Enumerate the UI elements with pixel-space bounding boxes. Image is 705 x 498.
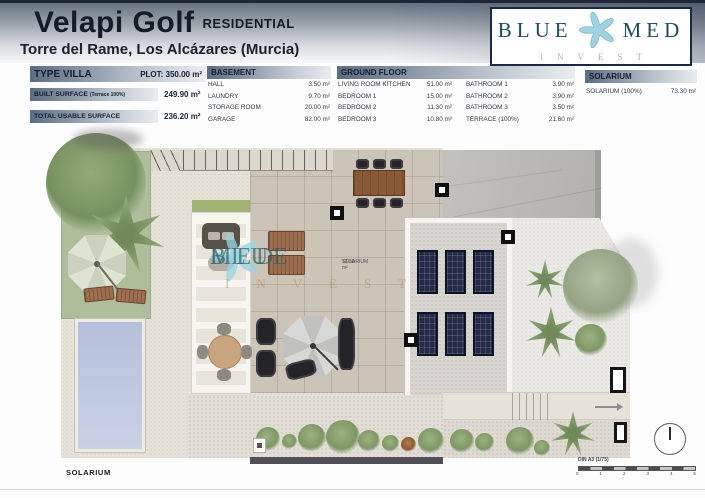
bush-icon	[282, 434, 297, 449]
roof-seam	[444, 170, 563, 188]
bush-icon	[475, 433, 494, 452]
bush-icon	[326, 420, 360, 454]
chair	[217, 323, 231, 335]
usable-surface-label: TOTAL USABLE SURFACE	[34, 113, 120, 120]
roof-seam	[454, 188, 601, 218]
dining-chair	[356, 198, 369, 208]
built-surface-label: BUILT SURFACE	[34, 91, 88, 98]
bush-icon	[418, 428, 444, 454]
table-row: BATHROOM 13.90 m²	[465, 79, 575, 91]
watermark-med: MED	[210, 245, 278, 269]
wall-opening	[610, 367, 626, 393]
dining-chair	[373, 198, 386, 208]
ground-floor-header: GROUND FLOOR	[337, 66, 575, 79]
table-row: STORAGE ROOM20.00 m²	[207, 102, 331, 114]
sun-lounger-icon	[115, 288, 146, 305]
development-name: Velapi Golf	[34, 6, 195, 39]
exit-arrow-head	[617, 403, 623, 411]
table-row: HALL3.50 m²	[207, 79, 331, 91]
dining-chair	[390, 198, 403, 208]
basement-header: BASEMENT	[207, 66, 331, 79]
scale-label: DIN A3 (1/75)	[578, 457, 609, 463]
armchair	[256, 318, 276, 345]
plan-sheet: Velapi GolfRESIDENTIAL Torre del Rame, L…	[0, 0, 705, 498]
stairs-landing	[150, 150, 180, 171]
tree-shadow	[73, 129, 143, 149]
solar-panel-icon	[473, 312, 494, 356]
bush-icon	[382, 435, 399, 452]
ground-floor-col1: LIVING ROOM KITCHEN51.00 m² BEDROOM 115.…	[337, 79, 453, 125]
bush-icon	[506, 427, 534, 455]
watermark-invest: INVEST	[225, 276, 465, 292]
solar-panel-icon	[445, 312, 466, 356]
page-edge	[0, 489, 705, 490]
table-row: SOLARIUM (100%)73.30 m²	[585, 86, 697, 98]
round-table	[208, 335, 242, 369]
dining-chair	[356, 159, 369, 169]
dining-chair	[373, 159, 386, 169]
exit-arrow-icon	[595, 406, 619, 408]
room-area: 73.30 m²	[342, 259, 355, 271]
solarium-table: SOLARIUM SOLARIUM (100%)73.30 m²	[585, 70, 697, 98]
pillar	[330, 206, 344, 220]
logo-invest: INVEST	[526, 52, 656, 62]
dining-chair	[390, 159, 403, 169]
table-row: LAUNDRY9.70 m²	[207, 91, 331, 103]
usable-surface-value: 236.20 m²	[164, 112, 200, 121]
scale-ticks: 0 1 2 3 4 5	[576, 471, 696, 476]
bush-icon	[450, 429, 474, 453]
roof	[443, 150, 601, 221]
residential-tag: RESIDENTIAL	[203, 16, 295, 31]
bush-icon	[401, 437, 416, 452]
built-surface-bar: BUILT SURFACE (Terrace 100%)	[30, 88, 158, 101]
wall-opening	[614, 422, 627, 443]
chair	[217, 369, 231, 381]
logo-word-med: MED	[623, 20, 685, 41]
pool	[75, 319, 145, 452]
basement-table: BASEMENT HALL3.50 m² LAUNDRY9.70 m² STOR…	[207, 66, 331, 125]
usable-surface-bar: TOTAL USABLE SURFACE	[30, 110, 158, 123]
table-row: TERRACE (100%)21.60 m²	[465, 114, 575, 126]
bluemed-logo: BLUE MED INVEST	[490, 7, 692, 66]
pillar	[435, 183, 449, 197]
floor-name-label: SOLARIUM	[66, 468, 111, 477]
chair	[197, 345, 208, 359]
logo-wordmark: BLUE MED	[498, 11, 685, 49]
armchair	[256, 350, 276, 377]
olive-tree-icon	[563, 249, 638, 324]
table-row: BEDROOM 115.00 m²	[337, 91, 453, 103]
north-arrow-icon	[654, 423, 686, 455]
table-row: BATHROOM 33.50 m²	[465, 102, 575, 114]
logo-word-blue: BLUE	[498, 20, 573, 41]
pillar	[501, 230, 515, 244]
pillar	[404, 333, 418, 347]
built-surface-note: (Terrace 100%)	[90, 92, 125, 98]
post-dot	[257, 443, 262, 448]
bush-icon	[358, 430, 380, 452]
bush-icon	[298, 424, 326, 452]
dining-table-icon	[353, 170, 405, 196]
built-surface-value: 249.90 m²	[164, 90, 200, 99]
type-villa-bar: TYPE VILLA PLOT: 350.00 m²	[30, 66, 206, 82]
table-row: BEDROOM 310.80 m²	[337, 114, 453, 126]
steps	[512, 393, 552, 421]
utility-post	[253, 438, 266, 453]
ground-floor-col2: BATHROOM 13.90 m² BATHROOM 23.90 m² BATH…	[465, 79, 575, 125]
plot-value: PLOT: 350.00 m²	[140, 70, 202, 79]
starfish-icon	[579, 11, 617, 49]
walkway	[443, 392, 630, 420]
solarium-floor-plan: BLUE MED SOLARIUM 73.30 m² INVEST	[58, 143, 693, 465]
boundary-wall	[250, 457, 443, 464]
solar-panel-icon	[417, 312, 438, 356]
sofa	[338, 318, 355, 370]
location-subtitle: Torre del Rame, Los Alcázares (Murcia)	[20, 41, 299, 58]
table-row: BATHROOM 23.90 m²	[465, 91, 575, 103]
planter	[192, 200, 250, 213]
stairs	[150, 150, 333, 171]
type-villa-label: TYPE VILLA	[34, 69, 92, 80]
bush-icon	[534, 440, 550, 456]
solarium-header: SOLARIUM	[585, 70, 697, 83]
table-row: GARAGE82.00 m²	[207, 114, 331, 126]
bush-icon	[575, 324, 607, 356]
page-title: Velapi GolfRESIDENTIAL	[34, 6, 295, 40]
table-row: BEDROOM 211.30 m²	[337, 102, 453, 114]
table-row: LIVING ROOM KITCHEN51.00 m²	[337, 79, 453, 91]
ground-floor-table: GROUND FLOOR LIVING ROOM KITCHEN51.00 m²…	[337, 66, 575, 125]
chair	[241, 345, 252, 359]
